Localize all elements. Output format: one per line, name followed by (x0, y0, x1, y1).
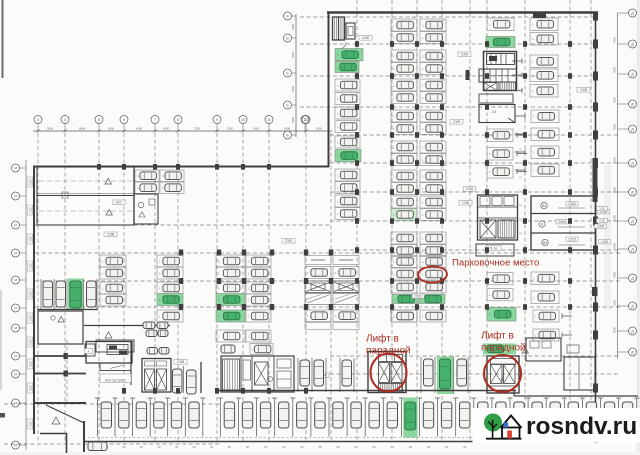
svg-text:30: 30 (157, 445, 161, 449)
svg-text:5150: 5150 (29, 385, 33, 391)
svg-text:И: И (14, 354, 17, 358)
svg-text:С400: С400 (568, 202, 576, 206)
svg-text:7800: 7800 (613, 66, 617, 73)
svg-text:30: 30 (391, 445, 395, 449)
svg-text:30: 30 (122, 445, 126, 449)
svg-text:4200: 4200 (163, 127, 170, 131)
svg-text:30: 30 (175, 445, 179, 449)
svg-text:Парковочное место: Парковочное место (452, 258, 539, 269)
svg-text:24000: 24000 (558, 220, 567, 224)
svg-text:С302: С302 (285, 239, 293, 243)
svg-text:И: И (14, 306, 17, 310)
svg-text:30: 30 (463, 445, 467, 449)
svg-text:5400: 5400 (291, 51, 295, 58)
svg-text:5150: 5150 (29, 315, 33, 321)
svg-text:7800: 7800 (613, 186, 617, 193)
svg-text:С309: С309 (453, 120, 461, 124)
svg-text:rosndv.ru: rosndv.ru (526, 413, 637, 440)
svg-text:7: 7 (154, 118, 156, 122)
svg-text:30: 30 (336, 445, 340, 449)
svg-text:И: И (14, 372, 17, 376)
svg-text:30: 30 (140, 445, 144, 449)
svg-text:И: И (14, 443, 17, 447)
svg-text:5150: 5150 (29, 263, 33, 269)
svg-text:11: 11 (267, 118, 271, 122)
svg-text:7800: 7800 (613, 96, 617, 103)
svg-text:30: 30 (409, 445, 413, 449)
svg-text:И: И (14, 251, 17, 255)
svg-text:5: 5 (98, 118, 100, 122)
svg-text:7800: 7800 (613, 123, 617, 130)
svg-text:В3: В3 (543, 241, 547, 245)
svg-text:7800: 7800 (613, 156, 617, 163)
svg-text:7800: 7800 (613, 326, 617, 333)
svg-text:3: 3 (37, 118, 39, 122)
svg-text:парадной: парадной (481, 343, 526, 354)
svg-text:П-1А: П-1А (490, 246, 498, 250)
svg-text:Лифт в: Лифт в (366, 333, 399, 345)
svg-text:С305: С305 (580, 88, 588, 92)
svg-text:5150: 5150 (29, 421, 33, 427)
svg-text:5150: 5150 (29, 339, 33, 345)
svg-text:2400: 2400 (316, 127, 323, 131)
svg-text:5400: 5400 (291, 116, 295, 123)
svg-text:В2: В2 (542, 204, 546, 208)
svg-text:7800: 7800 (613, 299, 617, 306)
svg-text:30: 30 (264, 445, 268, 449)
svg-text:С306: С306 (466, 187, 474, 191)
svg-text:4,35: 4,35 (599, 219, 605, 223)
svg-text:30: 30 (246, 445, 250, 449)
svg-text:6: 6 (123, 118, 125, 122)
svg-text:парадной: парадной (366, 346, 411, 357)
svg-text:3000: 3000 (47, 127, 54, 131)
svg-text:С308: С308 (462, 201, 470, 205)
svg-text:5400: 5400 (291, 23, 295, 30)
svg-text:6600: 6600 (79, 127, 86, 131)
svg-text:5150: 5150 (29, 361, 33, 367)
svg-text:АУУ: АУУ (116, 201, 123, 205)
svg-text:3,25: 3,25 (599, 207, 605, 211)
svg-text:4: 4 (64, 118, 66, 122)
svg-text:5400: 5400 (284, 127, 291, 131)
svg-text:30: 30 (427, 445, 431, 449)
svg-text:2: 2 (304, 118, 306, 122)
svg-text:3400: 3400 (253, 127, 260, 131)
svg-text:7500: 7500 (194, 127, 201, 131)
svg-text:С310: С310 (568, 237, 576, 241)
svg-text:7800: 7800 (613, 36, 617, 43)
svg-text:5150: 5150 (29, 207, 33, 213)
svg-text:5150: 5150 (29, 236, 33, 242)
svg-text:30: 30 (300, 445, 304, 449)
svg-text:АО-1(С308): АО-1(С308) (105, 378, 126, 382)
svg-text:30: 30 (228, 445, 232, 449)
svg-text:С305: С305 (597, 224, 605, 228)
svg-text:30: 30 (282, 445, 286, 449)
svg-text:3400: 3400 (108, 127, 115, 131)
svg-text:30: 30 (210, 445, 214, 449)
svg-text:5150: 5150 (29, 179, 33, 185)
svg-text:И: И (14, 194, 17, 198)
svg-text:30: 30 (318, 445, 322, 449)
svg-text:С303: С303 (414, 294, 422, 298)
svg-text:С300: С300 (461, 53, 469, 57)
svg-text:30: 30 (354, 445, 358, 449)
svg-text:7800: 7800 (613, 214, 617, 221)
svg-text:30: 30 (445, 445, 449, 449)
svg-text:С300: С300 (601, 240, 609, 244)
svg-text:7800: 7800 (613, 271, 617, 278)
svg-text:5300: 5300 (227, 127, 234, 131)
svg-text:2,5: 2,5 (492, 110, 497, 114)
svg-text:И: И (14, 166, 17, 170)
svg-text:В: В (541, 222, 543, 226)
svg-text:4: 4 (501, 377, 504, 383)
svg-text:С308: С308 (107, 233, 115, 237)
svg-text:7800: 7800 (613, 242, 617, 249)
svg-text:5150: 5150 (29, 291, 33, 297)
svg-text:9: 9 (216, 118, 218, 122)
svg-text:8: 8 (177, 118, 179, 122)
svg-text:И: И (14, 278, 17, 282)
svg-text:4100: 4100 (136, 127, 143, 131)
svg-text:5400: 5400 (291, 85, 295, 92)
svg-text:И: И (14, 326, 17, 330)
svg-text:С308: С308 (177, 360, 185, 364)
svg-text:С400: С400 (362, 36, 370, 40)
svg-text:30: 30 (373, 445, 377, 449)
svg-text:30: 30 (192, 445, 196, 449)
svg-text:Лифт в: Лифт в (481, 330, 514, 342)
svg-text:И: И (14, 223, 17, 227)
svg-text:И: И (14, 401, 17, 405)
svg-text:10: 10 (241, 118, 245, 122)
